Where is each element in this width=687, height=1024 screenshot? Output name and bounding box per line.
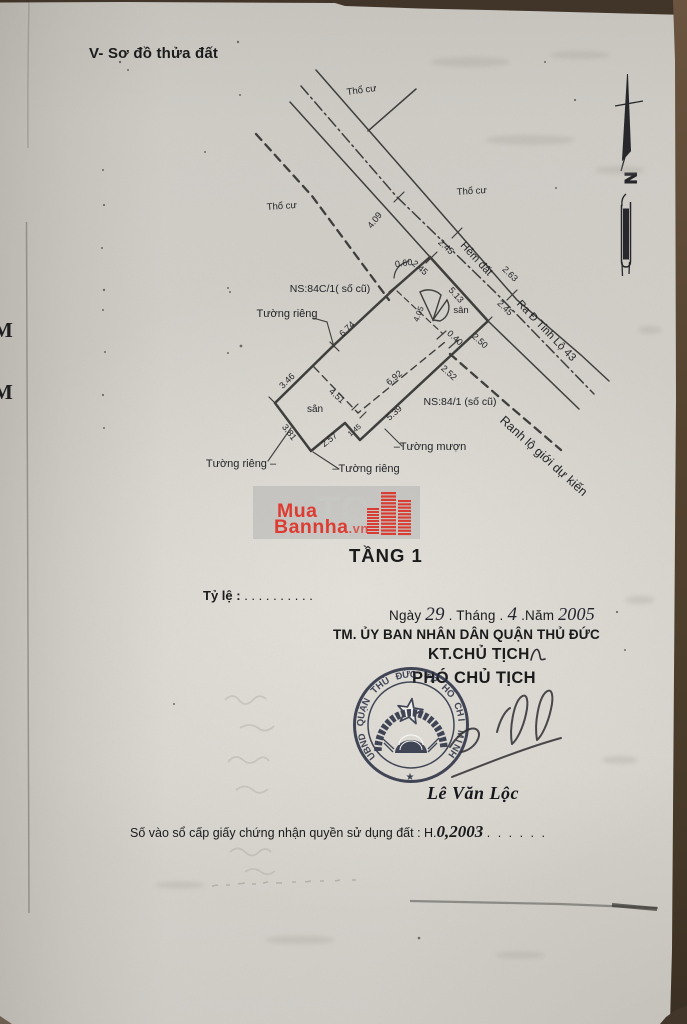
svg-text:★: ★ <box>406 772 415 783</box>
svg-text:Í: Í <box>455 718 466 722</box>
svg-text:M: M <box>0 318 13 342</box>
svg-text:D: D <box>356 732 368 741</box>
svg-text:H: H <box>453 708 465 717</box>
svg-text:C: C <box>410 669 417 680</box>
svg-text:M: M <box>0 380 13 404</box>
